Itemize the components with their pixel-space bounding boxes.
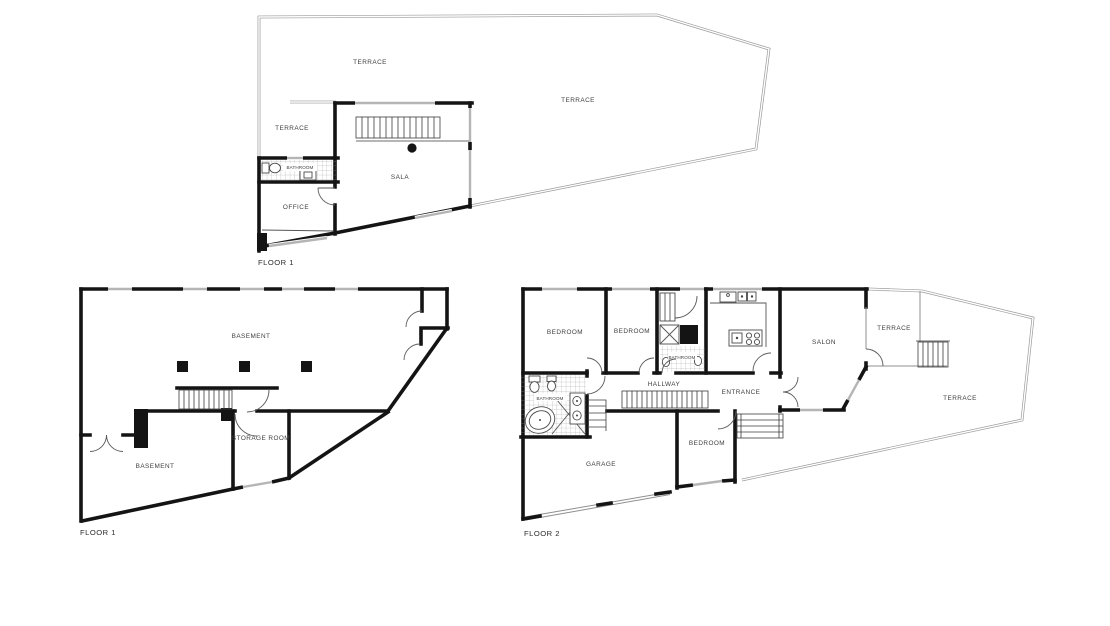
room-label-terrace-main: TERRACE <box>943 395 977 402</box>
bidet-icon <box>547 376 556 391</box>
room-label-bathroom: BATHROOM <box>286 165 313 170</box>
room-label-terrace-right: TERRACE <box>561 97 595 104</box>
room-label-hallway: HALLWAY <box>648 381 681 388</box>
kitchen-sink-icon <box>720 292 736 302</box>
double-sink-icon <box>570 393 585 424</box>
room-label-bedroom-3: BEDROOM <box>689 440 725 447</box>
bathroom-upper-area <box>660 293 705 372</box>
kitchen-island <box>729 330 762 346</box>
stove-icon <box>738 292 756 301</box>
room-label-office: OFFICE <box>283 204 309 211</box>
room-label-bedroom-2: BEDROOM <box>614 328 650 335</box>
stairs <box>179 390 232 409</box>
room-label-entrance: ENTRANCE <box>722 389 761 396</box>
room-label-terrace-upper: TERRACE <box>877 325 911 332</box>
plan-floor1-basement: BASEMENT STORAGE ROOM BASEMENT FLOOR 1 <box>80 289 448 537</box>
plan-floor1-upper: TERRACE TERRACE TERRACE BATHROOM SALA OF… <box>257 15 769 267</box>
floor-label: FLOOR 1 <box>80 528 116 537</box>
stairs-hallway <box>622 391 708 408</box>
sink-icon <box>300 170 316 180</box>
bathroom-area <box>261 160 336 180</box>
floorplan-page: TERRACE TERRACE TERRACE BATHROOM SALA OF… <box>0 0 1110 626</box>
plot-boundary <box>742 289 1033 480</box>
floorplan-canvas: TERRACE TERRACE TERRACE BATHROOM SALA OF… <box>0 0 1110 626</box>
toilet-icon <box>262 163 281 173</box>
door-arc <box>318 188 335 205</box>
room-label-salon: SALON <box>812 339 836 346</box>
kitchen-area <box>710 292 766 347</box>
room-label-basement-lower: BASEMENT <box>136 463 175 470</box>
room-label-terrace-left: TERRACE <box>275 125 309 132</box>
steps-entrance <box>737 414 783 438</box>
floor-label: FLOOR 1 <box>258 258 294 267</box>
room-label-terrace-top: TERRACE <box>353 59 387 66</box>
bathroom-main-area <box>521 375 586 438</box>
room-label-bedroom-1: BEDROOM <box>547 329 583 336</box>
windows <box>542 289 859 485</box>
duct <box>680 325 698 344</box>
closet <box>660 293 675 321</box>
room-label-garage: GARAGE <box>586 461 616 468</box>
room-label-bathroom-main: BATHROOM <box>536 396 563 401</box>
walls <box>81 289 448 521</box>
room-label-storage-room: STORAGE ROOM <box>232 435 290 442</box>
room-label-basement-main: BASEMENT <box>232 333 271 340</box>
room-label-bathroom-upper: BATHROOM <box>668 355 695 360</box>
toilet-icon <box>529 376 540 392</box>
columns <box>177 361 312 372</box>
floor-label: FLOOR 2 <box>524 529 560 538</box>
stairs <box>356 117 469 141</box>
column <box>407 143 416 152</box>
plan-floor2: BEDROOM BEDROOM BATHROOM SALON TERRACE H… <box>521 289 1033 538</box>
stairs-terrace <box>916 341 950 367</box>
room-label-sala: SALA <box>391 174 409 181</box>
steps-garage <box>589 400 606 431</box>
